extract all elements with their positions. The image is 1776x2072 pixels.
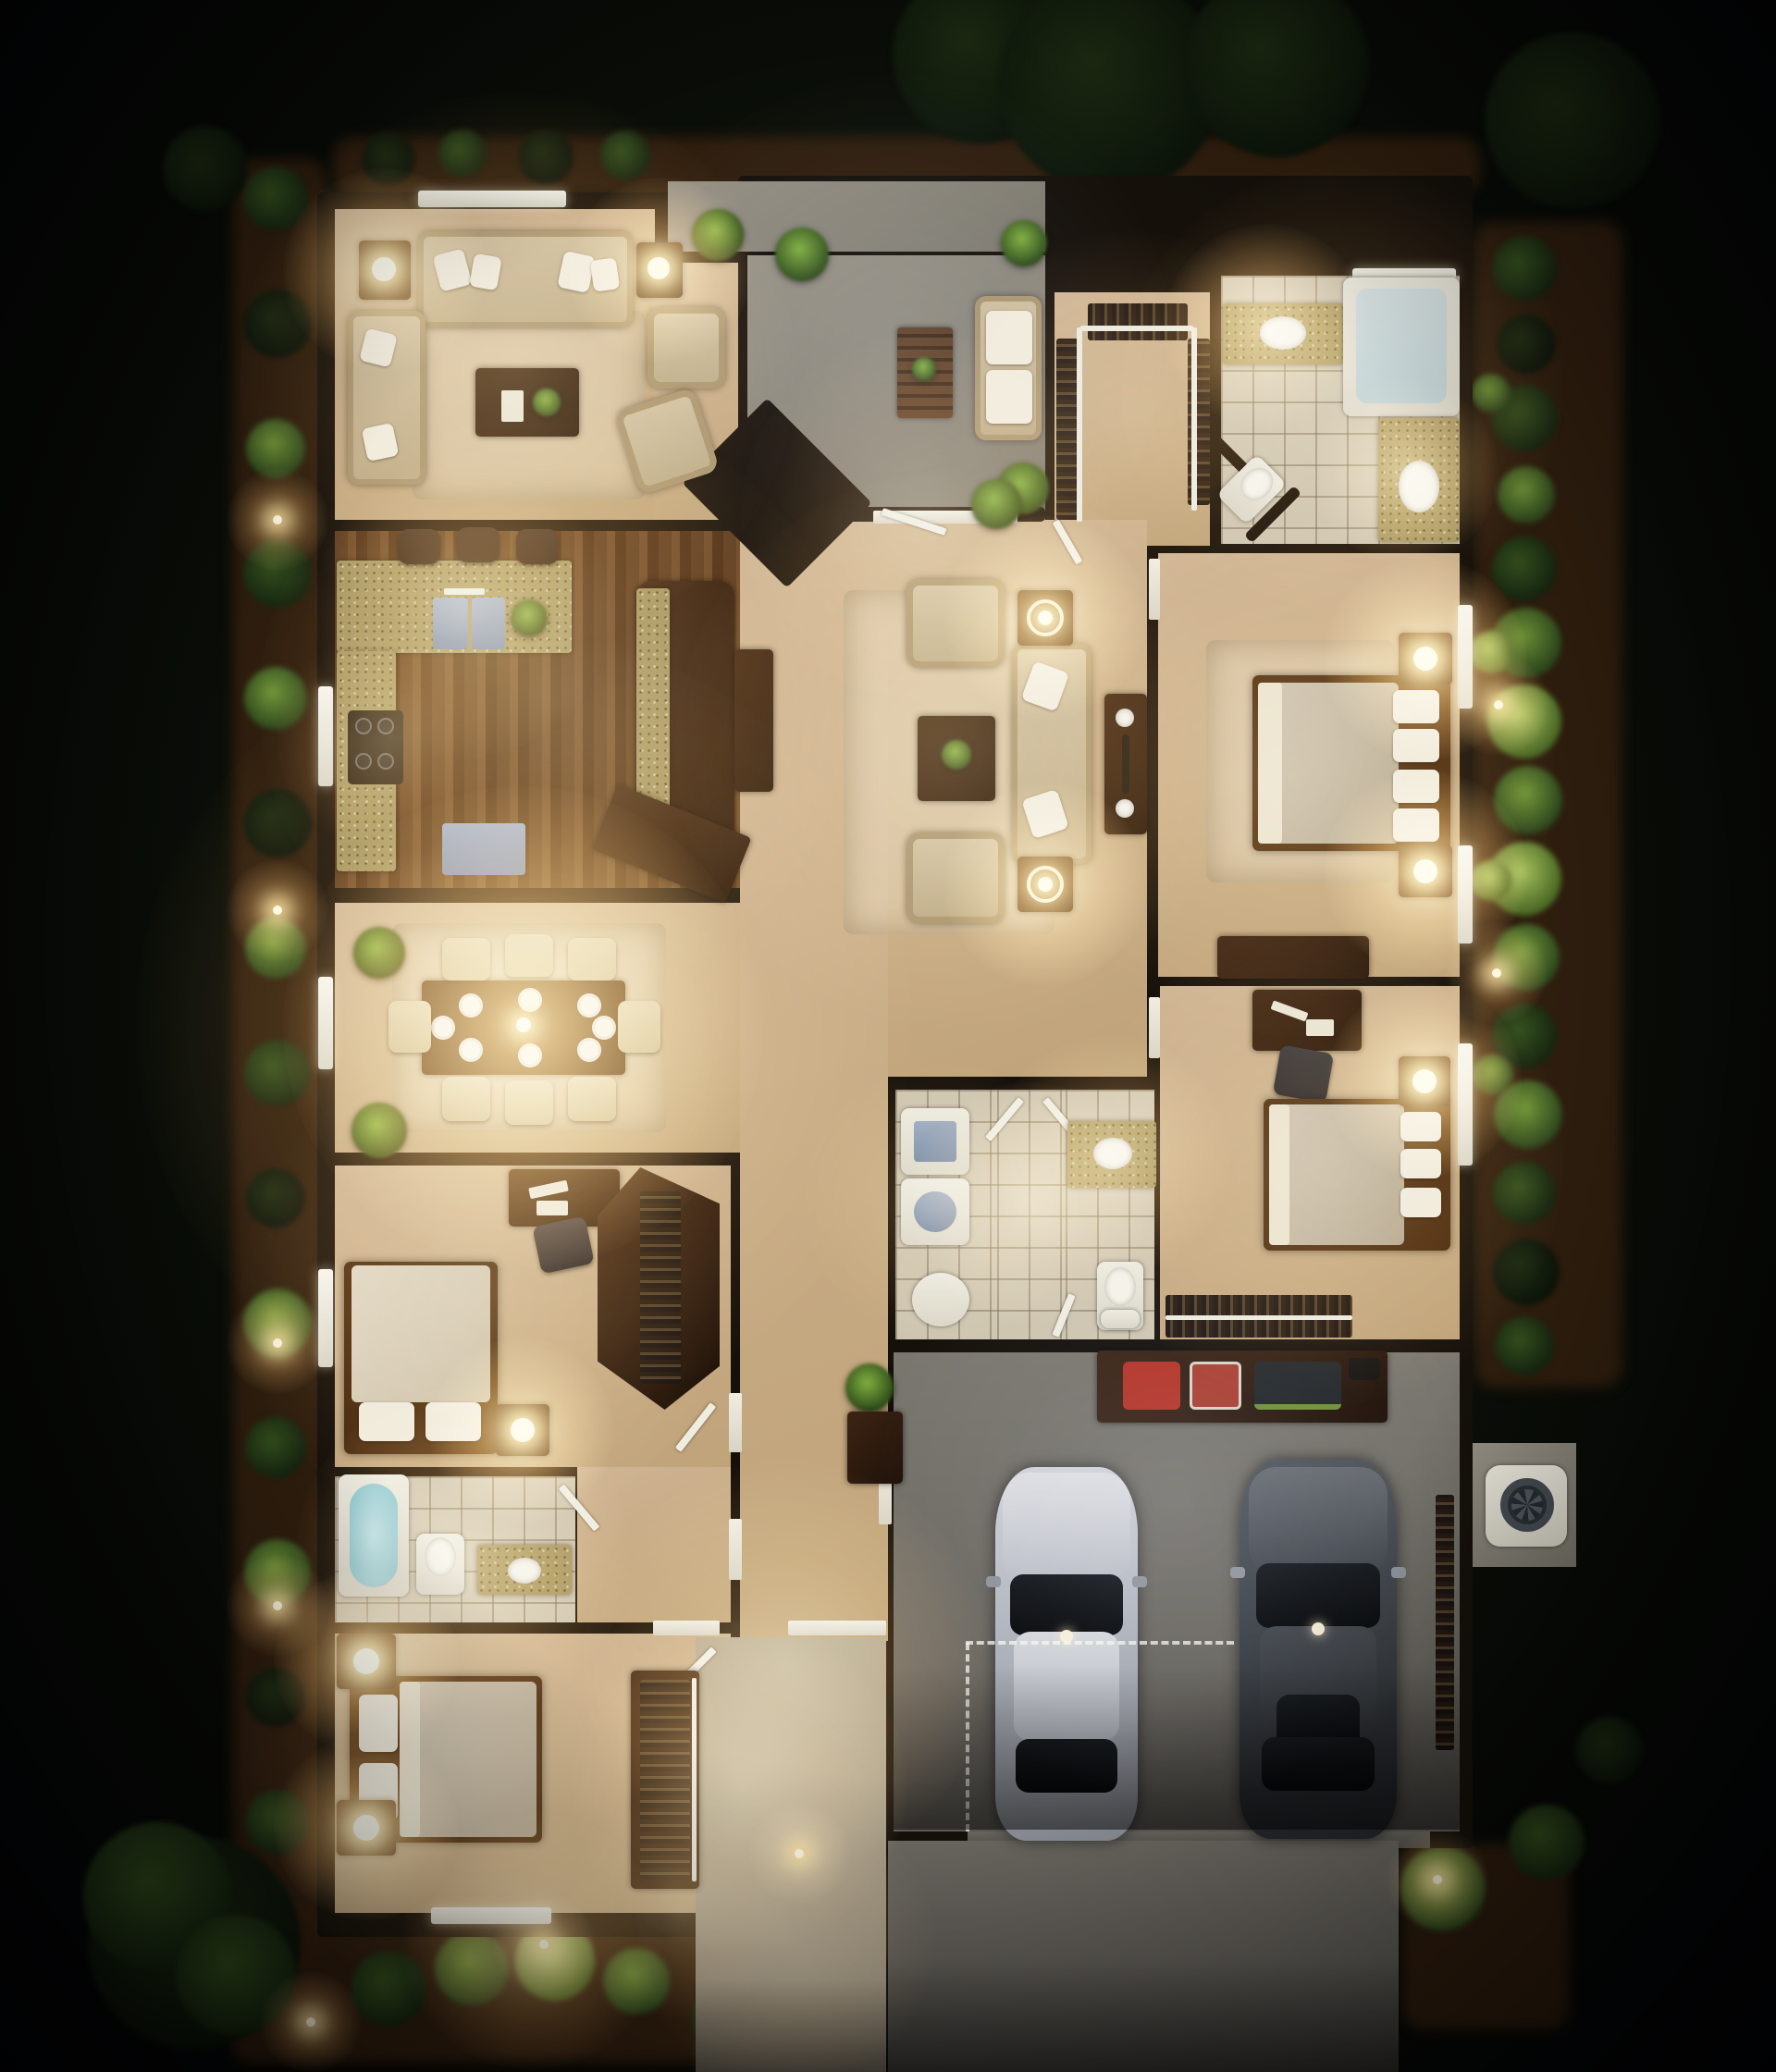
dining-chair bbox=[442, 938, 490, 980]
media-console bbox=[1104, 694, 1147, 834]
family-armchair-1 bbox=[906, 579, 1005, 668]
sink-basin-1 bbox=[433, 598, 468, 649]
room-mid-hall bbox=[997, 1090, 1066, 1339]
car-hood-highlight bbox=[1249, 1467, 1387, 1574]
shrub bbox=[1498, 466, 1555, 524]
cooler-red bbox=[1123, 1362, 1180, 1410]
roof-reflection bbox=[1312, 1622, 1325, 1635]
master-bed bbox=[1252, 675, 1450, 851]
shrub bbox=[1495, 1316, 1554, 1375]
place-setting bbox=[577, 993, 601, 1017]
shrub bbox=[1485, 32, 1660, 208]
table-lamp bbox=[1038, 610, 1053, 625]
bath2-sink bbox=[508, 1558, 541, 1584]
kitchen-counter-plant bbox=[511, 599, 548, 636]
washer-lid bbox=[914, 1121, 956, 1162]
table-lamp bbox=[511, 1418, 535, 1442]
garage-depth-shadow bbox=[894, 1665, 1460, 1830]
shrub bbox=[245, 918, 306, 979]
throw-pillow bbox=[432, 248, 472, 291]
dining-chair bbox=[568, 938, 616, 980]
porch-plant-tr bbox=[1001, 220, 1047, 266]
duvet bbox=[351, 1265, 490, 1402]
shrub bbox=[244, 1539, 311, 1606]
master-dresser bbox=[1217, 936, 1369, 979]
centerpiece bbox=[516, 1017, 531, 1032]
throw-pillow bbox=[1021, 660, 1070, 711]
foyer-door bbox=[788, 1621, 886, 1635]
window-bed4-bottom bbox=[431, 1907, 551, 1924]
shrub bbox=[246, 1168, 305, 1227]
place-setting bbox=[518, 1043, 542, 1067]
family-side-table-2 bbox=[1017, 857, 1073, 912]
hall-console bbox=[847, 1412, 903, 1484]
faucet bbox=[444, 588, 485, 595]
shrub bbox=[1493, 1162, 1556, 1225]
bed2-desk bbox=[1252, 990, 1362, 1051]
shrub bbox=[1487, 684, 1561, 758]
window-bed3-left bbox=[318, 1269, 333, 1367]
kitchen-dishwasher bbox=[442, 823, 525, 875]
path-light bbox=[273, 1338, 282, 1348]
burner bbox=[377, 718, 394, 734]
table-plant bbox=[912, 357, 936, 381]
toilet-bowl bbox=[425, 1537, 456, 1576]
living-side-table-left bbox=[359, 240, 411, 300]
shrub bbox=[603, 1948, 670, 2015]
shrub bbox=[438, 129, 487, 178]
car-mirror bbox=[986, 1576, 1001, 1587]
tub-basin bbox=[1356, 289, 1447, 403]
living-sofa bbox=[418, 231, 633, 327]
table-lamp bbox=[1412, 1069, 1437, 1093]
bin-dark bbox=[1254, 1362, 1341, 1410]
shrub bbox=[1492, 236, 1557, 301]
path-light bbox=[273, 906, 282, 915]
dining-chair bbox=[505, 1080, 553, 1125]
bath2-vanity bbox=[477, 1545, 572, 1595]
soundbar bbox=[1122, 734, 1129, 794]
dryer bbox=[901, 1178, 969, 1245]
bed3-closet bbox=[598, 1167, 720, 1410]
powder-vanity bbox=[1067, 1121, 1156, 1188]
dining-chair bbox=[505, 934, 553, 977]
walkway-shadow bbox=[696, 1979, 886, 2072]
laundry-hamper bbox=[912, 1273, 969, 1326]
closet-rod bbox=[692, 1678, 697, 1881]
throw-pillow bbox=[1021, 789, 1069, 839]
place-setting bbox=[459, 993, 483, 1017]
shrub bbox=[362, 132, 415, 186]
sheet-fold bbox=[1258, 683, 1282, 844]
table-lamp bbox=[1038, 877, 1053, 892]
family-coffee-table bbox=[918, 716, 995, 801]
bed2-desk-chair bbox=[1273, 1044, 1334, 1103]
living-armchair-1 bbox=[647, 307, 725, 388]
car-mirror bbox=[1132, 1576, 1147, 1587]
toilet-tank bbox=[1101, 1310, 1140, 1328]
sink-basin-2 bbox=[472, 598, 505, 649]
place-setting bbox=[592, 1016, 616, 1040]
shrub bbox=[1494, 1080, 1562, 1149]
bed3-bed bbox=[344, 1262, 498, 1454]
toilet-bowl bbox=[1104, 1267, 1136, 1306]
pillow bbox=[1393, 690, 1439, 723]
garage-storage-rack bbox=[1097, 1350, 1387, 1423]
desk-paper bbox=[528, 1180, 569, 1199]
shrub bbox=[245, 1417, 306, 1478]
entry-closet-rack-left bbox=[1056, 339, 1079, 520]
floor-plan-scene bbox=[0, 0, 1776, 2072]
bed2-bed bbox=[1264, 1099, 1450, 1251]
mbath-vanity-1 bbox=[1223, 303, 1343, 364]
bar-stool-3 bbox=[516, 529, 559, 564]
pillow bbox=[1400, 1188, 1441, 1217]
pillow bbox=[359, 1695, 398, 1752]
shrub bbox=[1576, 1717, 1643, 1783]
entry-closet-rod-right bbox=[1191, 327, 1197, 511]
shrub bbox=[243, 290, 312, 358]
shrub bbox=[1472, 374, 1511, 413]
throw-pillow bbox=[359, 327, 398, 367]
shrub bbox=[1471, 860, 1511, 901]
kitchen-cooktop bbox=[348, 710, 403, 784]
master-door bbox=[1149, 559, 1160, 620]
window-bed2-right bbox=[1458, 1043, 1473, 1165]
path-light bbox=[306, 2017, 315, 2027]
mbath-sink-2 bbox=[1399, 461, 1439, 512]
speaker bbox=[1116, 799, 1134, 818]
car-mirror bbox=[1391, 1567, 1406, 1578]
room-hall-bath2 bbox=[577, 1467, 731, 1622]
powder-toilet bbox=[1097, 1262, 1143, 1330]
washer bbox=[901, 1108, 969, 1175]
bed2-nightstand bbox=[1399, 1056, 1450, 1106]
path-light bbox=[1492, 968, 1501, 978]
mbath-tub bbox=[1343, 277, 1460, 416]
table-lamp bbox=[353, 1648, 379, 1674]
master-nightstand-1 bbox=[1399, 633, 1452, 684]
living-sectional bbox=[348, 311, 425, 485]
pillow bbox=[1400, 1112, 1441, 1141]
dryer-door bbox=[914, 1191, 956, 1232]
window-dining-left bbox=[318, 977, 333, 1069]
duvet bbox=[400, 1682, 536, 1837]
path-light bbox=[539, 1940, 549, 1949]
porch-slat-table bbox=[897, 327, 953, 418]
bench-cushion bbox=[986, 311, 1032, 364]
pillow bbox=[359, 1402, 414, 1441]
bench-cushion bbox=[986, 370, 1032, 424]
shrub bbox=[435, 1931, 509, 2005]
throw-pillow bbox=[557, 251, 596, 293]
car-hood-highlight bbox=[1003, 1473, 1130, 1584]
shrub bbox=[1400, 1846, 1486, 1931]
window-kitchen-left bbox=[318, 686, 333, 786]
bed3-nightstand bbox=[496, 1404, 549, 1456]
shrub bbox=[1494, 766, 1562, 834]
desk-paper bbox=[1270, 1000, 1308, 1021]
bar-stool-2 bbox=[457, 527, 499, 562]
burner bbox=[355, 753, 372, 770]
shrub bbox=[1493, 924, 1560, 991]
pillow bbox=[1393, 729, 1439, 762]
entry-closet-rod-left bbox=[1077, 327, 1082, 522]
porch-palm-nw bbox=[692, 209, 744, 261]
window-living-top bbox=[418, 191, 566, 207]
shrub bbox=[1470, 631, 1512, 673]
dining-chair-end bbox=[388, 1001, 431, 1053]
bath2-tub bbox=[339, 1474, 409, 1597]
burner bbox=[355, 718, 372, 734]
book bbox=[501, 390, 524, 422]
shrub bbox=[1497, 314, 1556, 374]
shrub bbox=[245, 1790, 310, 1855]
bed4-nightstand-2 bbox=[337, 1800, 396, 1856]
powder-sink bbox=[1093, 1138, 1132, 1169]
dining-chair-end bbox=[618, 1001, 660, 1053]
pillow bbox=[1393, 808, 1439, 842]
family-side-table-1 bbox=[1017, 590, 1073, 646]
shrub bbox=[243, 539, 312, 608]
car-mirror bbox=[1230, 1567, 1245, 1578]
parking-dash-line-h bbox=[966, 1641, 1234, 1645]
table-lamp bbox=[647, 257, 670, 279]
shrub bbox=[1184, 0, 1369, 157]
bar-stool-1 bbox=[398, 529, 440, 564]
path-light bbox=[1433, 1875, 1442, 1884]
entry-closet-rod-top bbox=[1080, 326, 1193, 331]
car-windshield bbox=[1256, 1563, 1380, 1628]
desk-paper bbox=[536, 1201, 568, 1215]
ac-fan-blades bbox=[1511, 1489, 1543, 1521]
table-lamp bbox=[372, 257, 396, 281]
hall-plant bbox=[845, 1363, 894, 1412]
shrub bbox=[600, 130, 650, 180]
shrub bbox=[244, 667, 307, 730]
shrub bbox=[163, 126, 248, 211]
path-light bbox=[1494, 700, 1503, 709]
dining-plant-2 bbox=[351, 1103, 407, 1158]
speaker bbox=[1116, 709, 1134, 727]
family-armchair-2 bbox=[906, 832, 1005, 923]
throw-pillow bbox=[362, 423, 400, 462]
desk-paper bbox=[1306, 1019, 1334, 1036]
dining-table bbox=[422, 980, 625, 1075]
table-lamp bbox=[353, 1815, 379, 1841]
throw-pillow bbox=[590, 257, 620, 292]
table-lamp bbox=[1413, 859, 1437, 883]
hall-sideboard bbox=[734, 649, 773, 792]
table-plant bbox=[533, 388, 561, 416]
shrub bbox=[243, 789, 312, 857]
throw-pillow bbox=[469, 253, 502, 291]
shrub bbox=[176, 1915, 296, 2035]
porch-plant-tl bbox=[775, 228, 829, 281]
master-nightstand-2 bbox=[1399, 845, 1452, 897]
bed4-closet bbox=[631, 1671, 699, 1889]
dining-chair bbox=[442, 1077, 490, 1121]
window-master-right-2 bbox=[1458, 845, 1473, 943]
bath2-toilet bbox=[416, 1534, 464, 1595]
porch-bench bbox=[975, 296, 1042, 440]
hall-bath2-door bbox=[729, 1519, 742, 1580]
entry-plant bbox=[971, 479, 1021, 529]
driveway-shadow bbox=[888, 1961, 1399, 2072]
path-light bbox=[273, 515, 282, 524]
pillow bbox=[425, 1402, 481, 1441]
closet-clothes bbox=[640, 1191, 681, 1384]
bin-striped bbox=[1190, 1362, 1241, 1410]
bed4-nightstand-1 bbox=[337, 1634, 396, 1689]
table-plant bbox=[942, 740, 971, 770]
place-setting bbox=[431, 1016, 455, 1040]
living-coffee-table bbox=[475, 368, 579, 437]
shrub bbox=[244, 1040, 311, 1106]
place-setting bbox=[459, 1038, 483, 1062]
car-windshield bbox=[1010, 1574, 1123, 1635]
place-setting bbox=[577, 1038, 601, 1062]
mbath-vanity-2 bbox=[1378, 418, 1460, 542]
window-master-right-1 bbox=[1458, 605, 1473, 709]
family-sofa bbox=[1012, 644, 1091, 864]
shrub bbox=[1509, 1805, 1585, 1881]
shrub bbox=[243, 166, 308, 231]
burner bbox=[377, 753, 394, 770]
ac-unit bbox=[1486, 1465, 1567, 1547]
sheet-fold bbox=[1269, 1104, 1289, 1245]
place-setting bbox=[518, 988, 542, 1012]
path-light bbox=[795, 1849, 804, 1858]
table-lamp bbox=[1413, 647, 1437, 671]
shrub bbox=[246, 1668, 305, 1727]
bed3-door bbox=[729, 1393, 742, 1452]
shrub bbox=[1492, 536, 1557, 601]
bed2-door bbox=[1149, 997, 1160, 1058]
shrub bbox=[246, 419, 305, 478]
shrub bbox=[1493, 1239, 1560, 1305]
mbath-sink-1 bbox=[1260, 316, 1306, 350]
tub-water bbox=[350, 1484, 398, 1587]
shrub bbox=[518, 129, 573, 185]
bed4-door bbox=[653, 1621, 720, 1635]
toolbox bbox=[1349, 1358, 1380, 1380]
closet-clothes bbox=[640, 1680, 690, 1880]
bed2-closet-rod bbox=[1165, 1315, 1352, 1320]
living-side-table-right bbox=[636, 242, 683, 298]
path-light bbox=[273, 1601, 282, 1610]
pillow bbox=[1393, 770, 1439, 803]
dining-chair bbox=[568, 1077, 616, 1121]
shrub bbox=[351, 1951, 426, 2027]
dining-plant-1 bbox=[353, 927, 405, 979]
pillow bbox=[1400, 1149, 1441, 1178]
entry-closet-rack-top bbox=[1088, 303, 1188, 340]
sheet-fold bbox=[400, 1682, 420, 1837]
